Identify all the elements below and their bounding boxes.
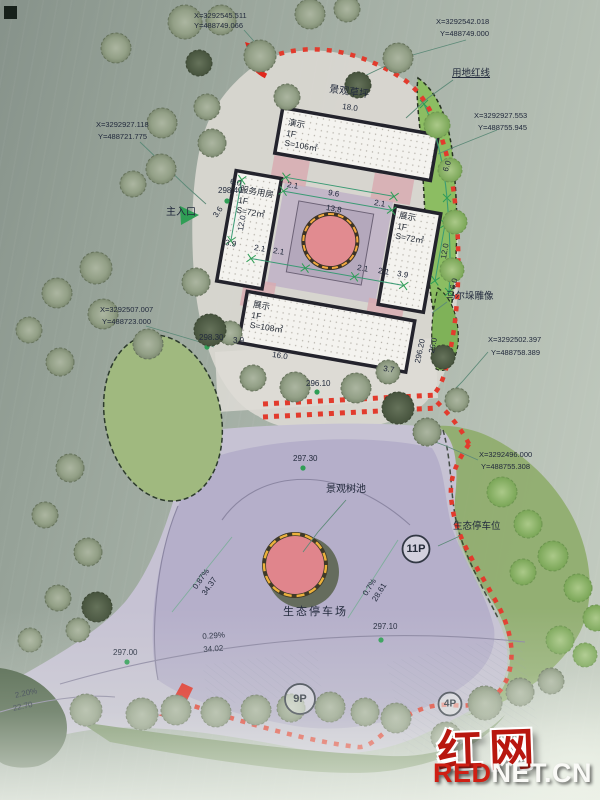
main-entrance-label: 主入口 — [166, 207, 196, 219]
coord-right-upper-x: X=3292927.553 — [474, 112, 527, 121]
coord-right-upper-y: Y=488755.945 — [478, 124, 527, 133]
building-east-label: 展示 1F S=72㎡ — [395, 210, 429, 246]
coord-top-left-y: Y=488749.066 — [194, 22, 243, 31]
elevation-29700: 297.00 — [113, 648, 137, 657]
watermark-white-part: NET.CN — [492, 758, 593, 788]
dim-6-0-a: 6.0 — [229, 177, 242, 188]
dim-2-1-a: 2.1 — [286, 180, 299, 191]
coord-left-mid-x: X=3292507.007 — [100, 306, 153, 315]
coord-right-mid-y: Y=488758.389 — [491, 349, 540, 358]
watermark-red-part: RED — [433, 758, 492, 788]
dim-2-1-b: 2.1 — [373, 198, 386, 209]
sculpture-label: 马尔垛雕像 — [446, 292, 494, 303]
dim-9-6: 9.6 — [327, 188, 340, 199]
coord-top-left-x: X=3292545.511 — [194, 12, 247, 21]
dim-2-1-f: 2.1 — [377, 266, 390, 277]
tree-pool-label: 景观树池 — [326, 484, 366, 496]
elevation-29610: 296.10 — [306, 379, 330, 388]
red-line-label: 用地红线 — [452, 69, 490, 80]
dim-2-1-d: 2.1 — [272, 246, 285, 257]
slope-3-pct: 0.29% — [202, 630, 225, 641]
building-south-label: 展示 1F S=108㎡ — [249, 299, 287, 335]
coord-right-lower-x: X=3292496.000 — [479, 451, 532, 460]
coord-right-lower-y: Y=488755.308 — [481, 463, 530, 472]
coord-right-mid-x: X=3292502.397 — [488, 336, 541, 345]
dim-2-1-c: 2.1 — [253, 243, 266, 254]
eco-parking-lot-label: 生态停车场 — [283, 606, 348, 619]
eco-parking-space-label: 生态停车位 — [453, 522, 501, 533]
elevation-29710: 297.10 — [373, 622, 397, 631]
site-plan-photo: X=3292545.511 Y=488749.066 X=3292542.018… — [0, 0, 600, 800]
coord-top-right-y: Y=488749.000 — [440, 30, 489, 39]
parking-count-4p: 4P — [444, 698, 456, 709]
elevation-29730: 297.30 — [293, 454, 317, 463]
parking-count-11p: 11P — [407, 543, 426, 555]
rednet-watermark-en: REDNET.CN — [433, 758, 592, 789]
coord-top-right-x: X=3292542.018 — [436, 18, 489, 27]
coord-left-upper-x: X=3292927.118 — [96, 121, 149, 130]
parking-count-9p: 9P — [293, 693, 306, 705]
dim-3-9-a: 3.9 — [224, 238, 237, 249]
elevation-29830: 298.30 — [199, 333, 223, 342]
photo-artifact — [4, 6, 17, 19]
coord-left-upper-y: Y=488721.775 — [98, 133, 147, 142]
building-north-label: 演示 1F S=106㎡ — [284, 117, 322, 154]
lawn-dim: 18.0 — [342, 102, 359, 113]
coord-left-mid-y: Y=488723.000 — [102, 318, 151, 327]
slope-3-len: 34.02 — [203, 644, 224, 655]
dim-3-7: 3.7 — [383, 364, 395, 375]
dim-3-9-c: 3.9 — [233, 336, 244, 345]
dim-2-1-e: 2.1 — [356, 263, 369, 274]
dim-3-9-b: 3.9 — [396, 269, 409, 280]
